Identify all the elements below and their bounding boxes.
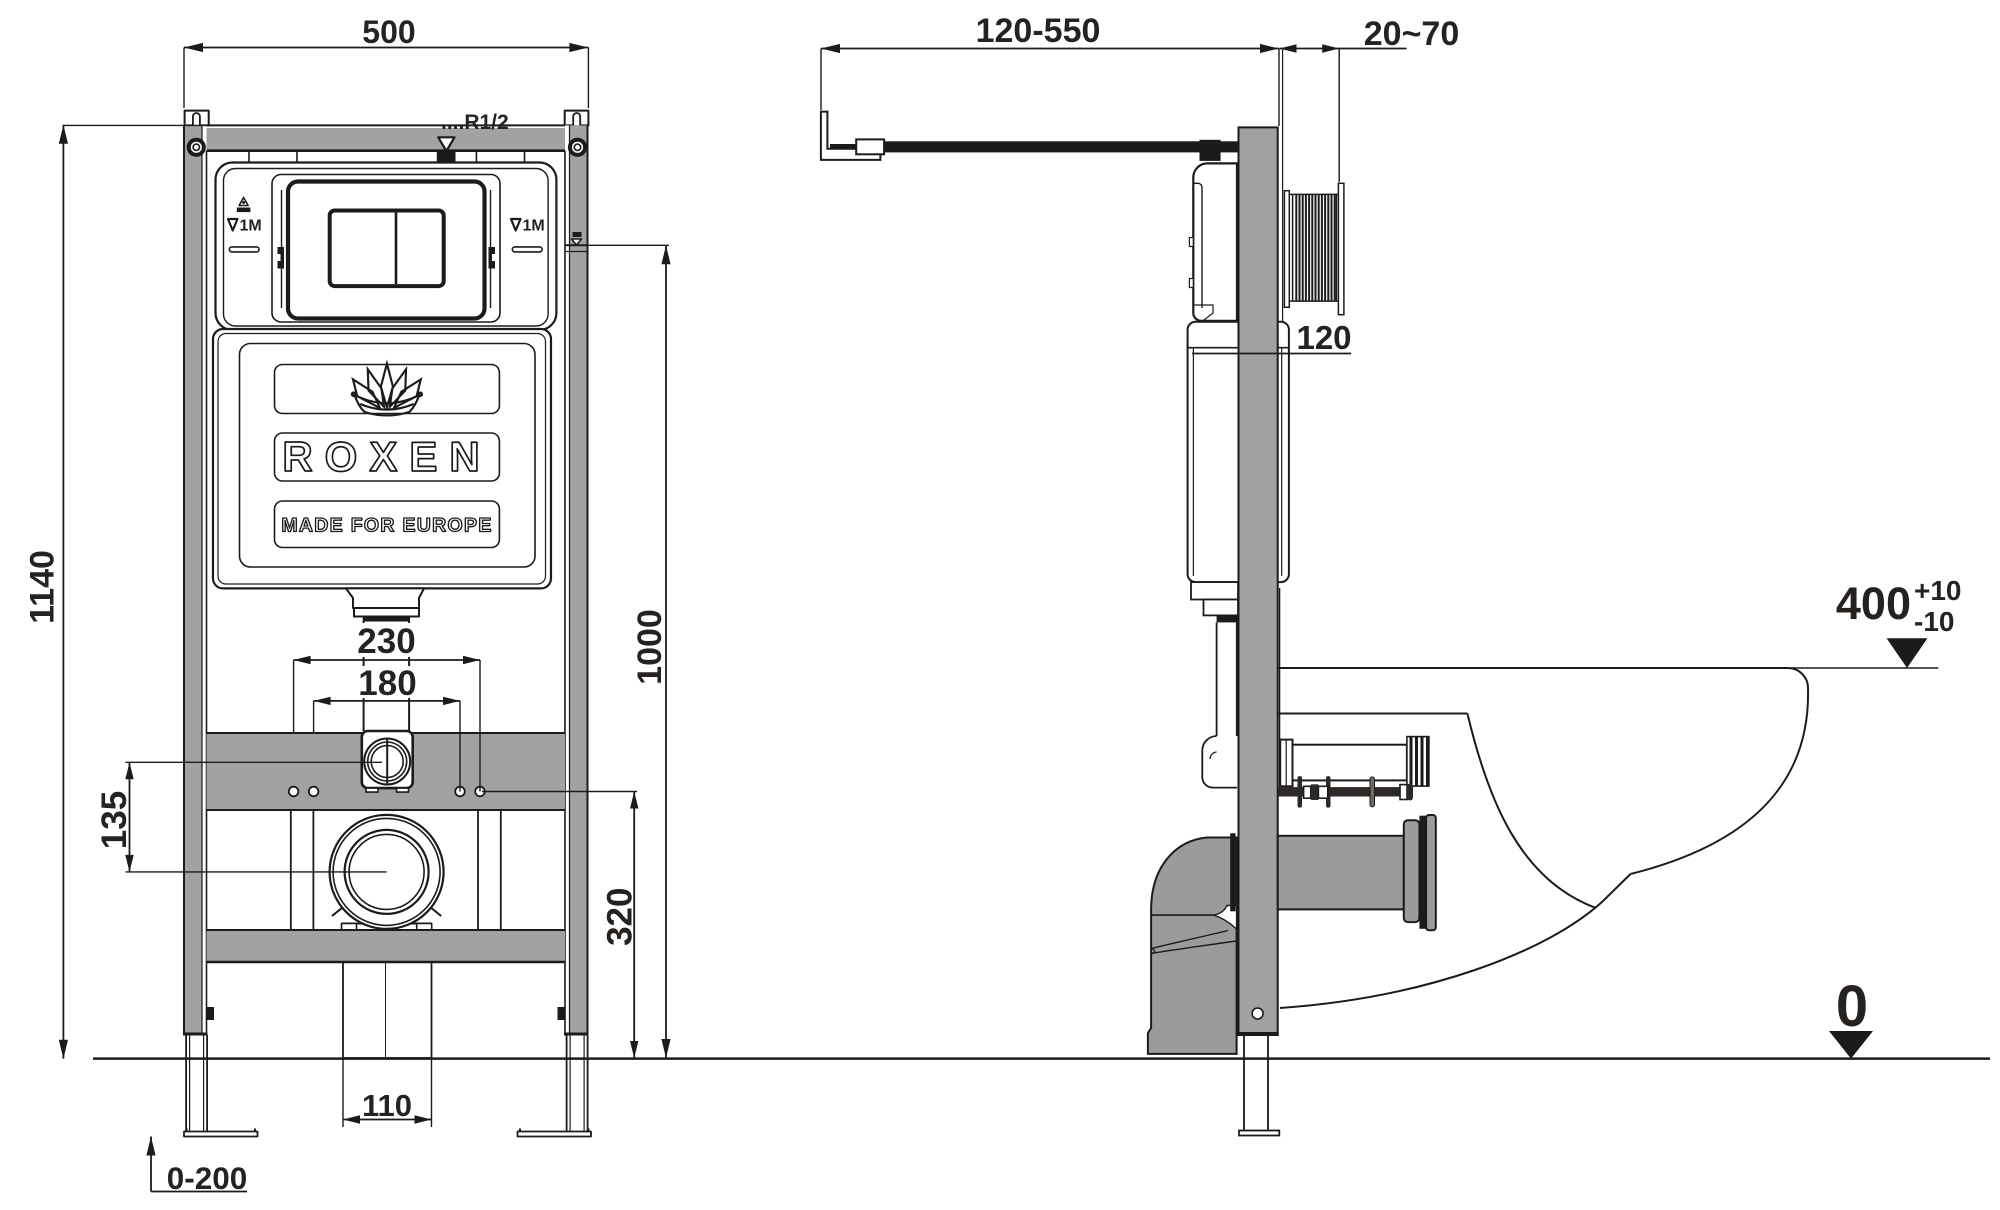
svg-text:1M: 1M bbox=[523, 218, 545, 235]
svg-text:180: 180 bbox=[358, 664, 416, 703]
svg-text:+10: +10 bbox=[1914, 575, 1962, 606]
svg-text:-10: -10 bbox=[1914, 606, 1954, 637]
svg-text:400: 400 bbox=[1836, 578, 1911, 629]
svg-text:MADE FOR EUROPE: MADE FOR EUROPE bbox=[281, 515, 492, 537]
svg-text:120-550: 120-550 bbox=[976, 12, 1101, 50]
svg-text:110: 110 bbox=[362, 1088, 412, 1123]
svg-text:....R1/2: ....R1/2 bbox=[441, 111, 509, 134]
svg-text:1140: 1140 bbox=[24, 550, 62, 624]
svg-text:230: 230 bbox=[357, 622, 415, 661]
svg-text:ROXEN: ROXEN bbox=[282, 433, 491, 480]
svg-text:135: 135 bbox=[95, 791, 134, 849]
svg-text:1000: 1000 bbox=[631, 609, 669, 685]
svg-text:500: 500 bbox=[362, 14, 415, 50]
svg-text:1M: 1M bbox=[240, 218, 262, 235]
svg-text:120: 120 bbox=[1296, 319, 1351, 356]
svg-text:0: 0 bbox=[1836, 974, 1868, 1039]
svg-text:20~70: 20~70 bbox=[1364, 15, 1460, 53]
